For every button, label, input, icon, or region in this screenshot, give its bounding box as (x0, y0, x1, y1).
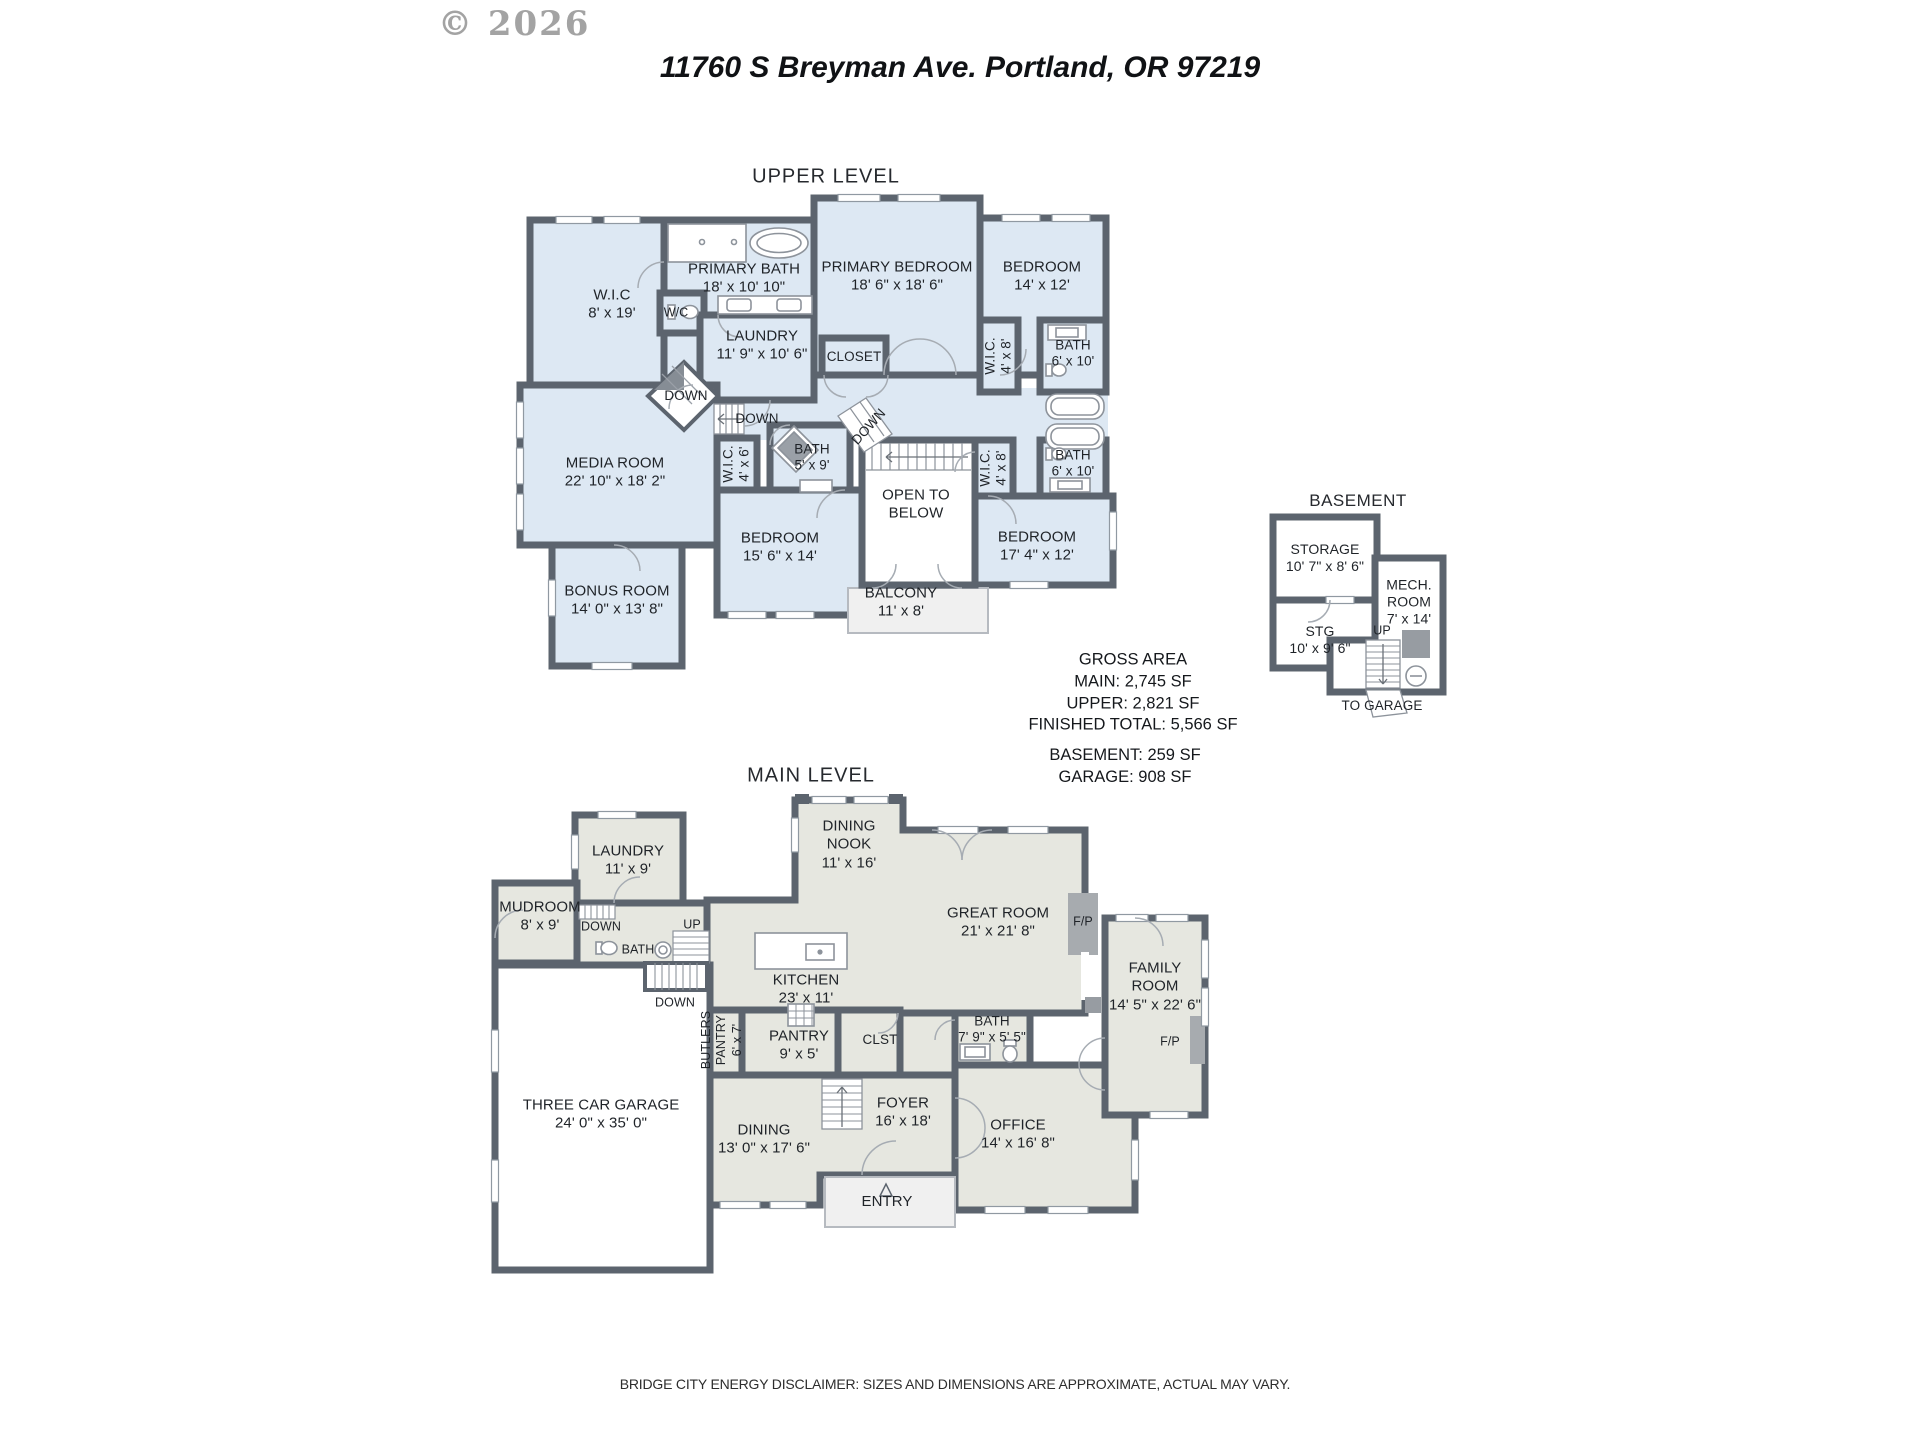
gross-area-total: FINISHED TOTAL: 5,566 SF (1028, 715, 1237, 737)
room-label-office: OFFICE 14' x 16' 8" (981, 1117, 1055, 1154)
upper-level-heading: UPPER LEVEL (752, 166, 900, 189)
room-label-dining: DINING 13' 0" x 17' 6" (718, 1122, 810, 1159)
room-name: LAUNDRY (592, 843, 664, 861)
room-name: BONUS ROOM (564, 583, 669, 601)
room-dims: 11' x 9' (592, 861, 664, 879)
room-label-wic-mid: W.I.C. 4' x 6' (721, 445, 754, 482)
room-label-stg: STG 10' x 9' 6" (1289, 623, 1350, 657)
room-label-mech: MECH. ROOM 7' x 14' (1386, 576, 1432, 627)
room-dims: 11' x 16' (822, 854, 877, 872)
room-name: ROOM (1109, 978, 1201, 996)
room-label-bath-se: BATH 6' x 10' (1052, 448, 1095, 481)
room-label-mudroom: MUDROOM 8' x 9' (499, 899, 581, 936)
to-garage-label: TO GARAGE (1342, 698, 1423, 714)
room-dims: 18' x 10' 10" (688, 279, 800, 297)
room-label-balcony: BALCONY 11' x 8' (865, 585, 937, 622)
room-name: BATH (958, 1014, 1026, 1030)
room-label-wic-se: W.I.C. 4' x 8' (978, 449, 1011, 486)
room-dims: 5' x 9' (794, 458, 829, 474)
room-dims: 7' x 14' (1386, 611, 1432, 628)
floorplan-page: © 2026 11760 S Breyman Ave. Portland, OR… (0, 0, 1920, 1440)
room-name: BALCONY (865, 585, 937, 603)
room-label-bath-ne: BATH 6' x 10' (1052, 338, 1095, 371)
stair-label-down: DOWN (735, 411, 778, 427)
mech-unit (1402, 630, 1430, 658)
room-label-storage: STORAGE 10' 7" x 8' 6" (1286, 541, 1364, 575)
room-label-foyer: FOYER 16' x 18' (875, 1095, 931, 1132)
main-level-heading: MAIN LEVEL (747, 765, 875, 788)
room-name: MUDROOM (499, 899, 581, 917)
room-dims: 9' x 5' (769, 1046, 829, 1064)
room-dims: 23' x 11' (773, 990, 840, 1008)
room-dims: 4' x 6' (737, 445, 753, 482)
room-dims: 24' 0" x 35' 0" (523, 1115, 680, 1133)
stair-label-up: UP (1373, 623, 1391, 638)
room-label-garage: THREE CAR GARAGE 24' 0" x 35' 0" (523, 1097, 680, 1134)
gross-area-main: MAIN: 2,745 SF (1028, 671, 1237, 693)
room-label-clst: CLST (863, 1032, 898, 1048)
room-dims: 14' x 12' (1003, 277, 1081, 295)
room-label-great-room: GREAT ROOM 21' x 21' 8" (947, 905, 1049, 942)
room-label-primary-bedroom: PRIMARY BEDROOM 18' 6" x 18' 6" (822, 259, 973, 296)
room-dims: 11' 9" x 10' 6" (717, 346, 808, 364)
stair-label-up: UP (683, 917, 701, 932)
room-label-closet: CLOSET (827, 349, 882, 365)
room-name: THREE CAR GARAGE (523, 1097, 680, 1115)
room-label-bath-hall: BATH (622, 942, 655, 957)
room-dims: 11' x 8' (865, 603, 937, 621)
room-name: W.I.C. (978, 449, 994, 486)
room-dims: 13' 0" x 17' 6" (718, 1140, 810, 1158)
room-name: KITCHEN (773, 972, 840, 990)
room-name: PANTRY (769, 1028, 829, 1046)
room-name: STG (1289, 623, 1350, 640)
room-dims: 6' x 7' (730, 1011, 745, 1069)
room-dims: 7' 9" x 5' 5" (958, 1030, 1026, 1046)
stair-label-down: DOWN (664, 388, 707, 404)
room-name: BUTLERS (699, 1011, 714, 1069)
room-label-bedroom-se: BEDROOM 17' 4" x 12' (998, 529, 1076, 566)
room-name: FAMILY (1109, 960, 1201, 978)
room-name: BATH (1052, 448, 1095, 464)
room-dims: 14' x 16' 8" (981, 1135, 1055, 1153)
room-label-wic-ne: W.I.C. 4' x 8' (983, 337, 1016, 374)
gross-area-block-2: BASEMENT: 259 SF GARAGE: 908 SF (1049, 745, 1200, 789)
room-name: DINING (718, 1122, 810, 1140)
room-dims: 15' 6" x 14' (741, 548, 819, 566)
room-dims: 10' 7" x 8' 6" (1286, 558, 1364, 575)
room-label-dining-nook: DINING NOOK 11' x 16' (822, 818, 877, 873)
room-name: LAUNDRY (717, 328, 808, 346)
room-dims: 10' x 9' 6" (1289, 640, 1350, 657)
room-name: PRIMARY BATH (688, 261, 800, 279)
room-name: MECH. (1386, 576, 1432, 593)
room-dims: 16' x 18' (875, 1113, 931, 1131)
room-label-bedroom-s: BEDROOM 15' 6" x 14' (741, 530, 819, 567)
fireplace-label: F/P (1160, 1034, 1180, 1049)
gross-area-block: GROSS AREA MAIN: 2,745 SF UPPER: 2,821 S… (1028, 649, 1237, 736)
room-name: W.I.C (588, 287, 635, 305)
room-dims: 17' 4" x 12' (998, 547, 1076, 565)
room-name: PANTRY (714, 1011, 729, 1069)
room-label-wc: W/C (664, 305, 689, 320)
stair-label-down: DOWN (655, 995, 695, 1010)
room-name: BATH (794, 442, 829, 458)
room-name: ROOM (1386, 593, 1432, 610)
room-label-bath-main: BATH 7' 9" x 5' 5" (958, 1014, 1026, 1047)
basement-heading: BASEMENT (1309, 491, 1407, 511)
room-dims: 4' x 8' (994, 449, 1010, 486)
gross-area-upper: UPPER: 2,821 SF (1028, 693, 1237, 715)
room-dims: 4' x 8' (999, 337, 1015, 374)
fireplace-label: F/P (1073, 914, 1093, 929)
room-label-wic: W.I.C 8' x 19' (588, 287, 635, 324)
room-name: NOOK (822, 836, 877, 854)
room-name: GREAT ROOM (947, 905, 1049, 923)
gross-area-title: GROSS AREA (1028, 649, 1237, 671)
room-name: W.I.C. (983, 337, 999, 374)
room-label-pantry: PANTRY 9' x 5' (769, 1028, 829, 1065)
room-dims: 6' x 10' (1052, 354, 1095, 370)
room-dims: 21' x 21' 8" (947, 923, 1049, 941)
room-dims: 14' 5" x 22' 6" (1109, 996, 1201, 1014)
room-name: BEDROOM (1003, 259, 1081, 277)
stair-label-down: DOWN (581, 919, 621, 934)
room-dims: 18' 6" x 18' 6" (822, 277, 973, 295)
room-name: OPEN TO (882, 487, 950, 505)
room-name: BEDROOM (741, 530, 819, 548)
room-label-media: MEDIA ROOM 22' 10" x 18' 2" (565, 455, 666, 492)
gross-area-basement: BASEMENT: 259 SF (1049, 745, 1200, 767)
room-label-laundry-main: LAUNDRY 11' x 9' (592, 843, 664, 880)
room-label-open-below: OPEN TO BELOW (882, 487, 950, 524)
room-dims: 8' x 9' (499, 917, 581, 935)
gross-area-garage: GARAGE: 908 SF (1049, 767, 1200, 789)
room-name: STORAGE (1286, 541, 1364, 558)
disclaimer-text: BRIDGE CITY ENERGY DISCLAIMER: SIZES AND… (620, 1376, 1290, 1392)
room-name: FOYER (875, 1095, 931, 1113)
room-label-entry: ENTRY (861, 1193, 912, 1211)
room-label-laundry-upper: LAUNDRY 11' 9" x 10' 6" (717, 328, 808, 365)
room-dims: 22' 10" x 18' 2" (565, 473, 666, 491)
room-name: W.I.C. (721, 445, 737, 482)
room-label-bath-mid: BATH 5' x 9' (794, 442, 829, 475)
room-label-bedroom-ne: BEDROOM 14' x 12' (1003, 259, 1081, 296)
floorplan-drawing (0, 0, 1920, 1440)
room-name: BELOW (882, 505, 950, 523)
room-name: PRIMARY BEDROOM (822, 259, 973, 277)
room-name: BATH (1052, 338, 1095, 354)
room-dims: 14' 0" x 13' 8" (564, 601, 669, 619)
room-dims: 6' x 10' (1052, 464, 1095, 480)
room-name: OFFICE (981, 1117, 1055, 1135)
room-name: DINING (822, 818, 877, 836)
room-label-kitchen: KITCHEN 23' x 11' (773, 972, 840, 1009)
room-label-butlers-pantry: BUTLERS PANTRY 6' x 7' (699, 1011, 745, 1069)
room-name: MEDIA ROOM (565, 455, 666, 473)
room-label-bonus: BONUS ROOM 14' 0" x 13' 8" (564, 583, 669, 620)
room-label-family-room: FAMILY ROOM 14' 5" x 22' 6" (1109, 960, 1201, 1015)
room-name: BEDROOM (998, 529, 1076, 547)
room-dims: 8' x 19' (588, 305, 635, 323)
room-label-primary-bath: PRIMARY BATH 18' x 10' 10" (688, 261, 800, 298)
